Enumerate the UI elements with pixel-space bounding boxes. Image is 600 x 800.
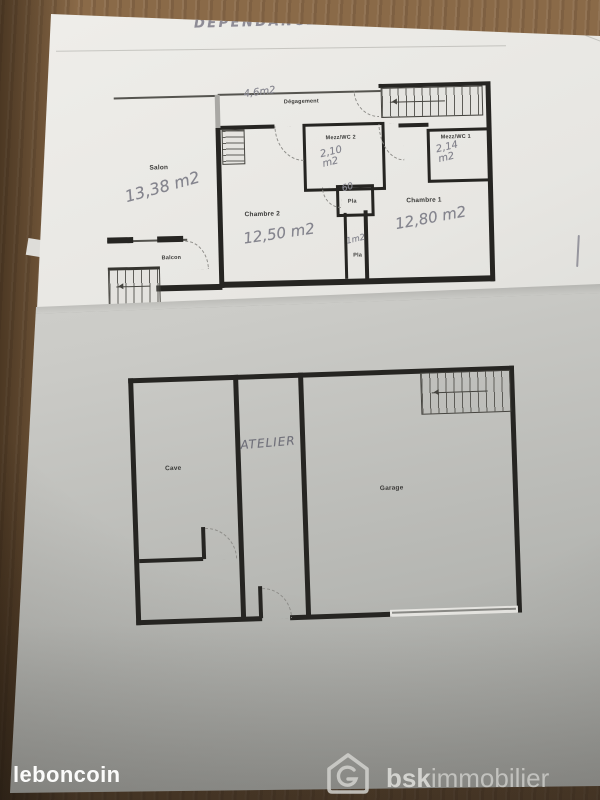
wall-segment <box>139 557 203 563</box>
stairs-arrow <box>432 391 488 394</box>
door-arc <box>205 527 237 560</box>
room-label-placard-2: Pla <box>345 252 371 259</box>
room-label-degagement: Dégagement <box>284 98 319 105</box>
bsk-watermark-bold: bsk <box>386 763 431 793</box>
room-area-chambre-1: 12,80 m2 <box>394 202 468 233</box>
bsk-watermark: bskimmobilier <box>386 763 549 794</box>
wall-segment <box>220 275 494 288</box>
bsk-watermark-light: immobilier <box>431 763 549 793</box>
room-label-balcon: Balcon <box>162 255 182 261</box>
window <box>107 237 133 244</box>
floor-plan-lower: Cave ATELIER Garage <box>120 355 528 630</box>
wall-segment <box>215 95 221 128</box>
wall-segment <box>485 83 495 281</box>
stairs-arrow <box>116 286 150 288</box>
leboncoin-watermark: leboncoin <box>13 762 121 788</box>
room-label-cave: Cave <box>165 465 182 473</box>
floor-plan-upper: Salon Dégagement Mezz/WC 2 Mezz/WC 1 Cha… <box>97 75 498 303</box>
door-arc <box>322 187 342 208</box>
window <box>157 236 183 243</box>
room-label-salon: Salon <box>149 164 168 171</box>
stairs-upper-right <box>381 85 484 117</box>
stairs-mezzanine <box>222 129 246 165</box>
bsk-house-icon <box>323 751 373 795</box>
room-label-atelier-handwritten: ATELIER <box>240 433 296 452</box>
crease-line <box>56 45 506 51</box>
room-label-placard-1: Pla <box>336 198 368 205</box>
stairs-garage <box>420 370 511 415</box>
stairs-arrow <box>390 100 445 102</box>
room-area-placard-2: 1m2 <box>345 233 366 247</box>
pen-mark <box>576 235 580 267</box>
wall-segment <box>114 95 218 99</box>
wall-segment <box>156 284 222 292</box>
room-area-salon: 13,38 m2 <box>123 167 202 206</box>
wall-segment <box>128 378 141 625</box>
room-area-chambre-2: 12,50 m2 <box>242 219 316 247</box>
wall-segment <box>233 375 246 620</box>
room-label-chambre-2: Chambre 2 <box>245 210 281 218</box>
door-arc <box>262 587 292 619</box>
door-arc <box>354 90 380 118</box>
door-arc <box>185 240 209 270</box>
room-label-garage: Garage <box>380 484 404 492</box>
room-area-degagement: 4,6m2 <box>243 85 276 100</box>
door-arc <box>274 126 304 162</box>
wall-segment <box>298 373 311 618</box>
room-label-chambre-1: Chambre 1 <box>406 196 442 204</box>
wall-segment <box>364 210 370 280</box>
